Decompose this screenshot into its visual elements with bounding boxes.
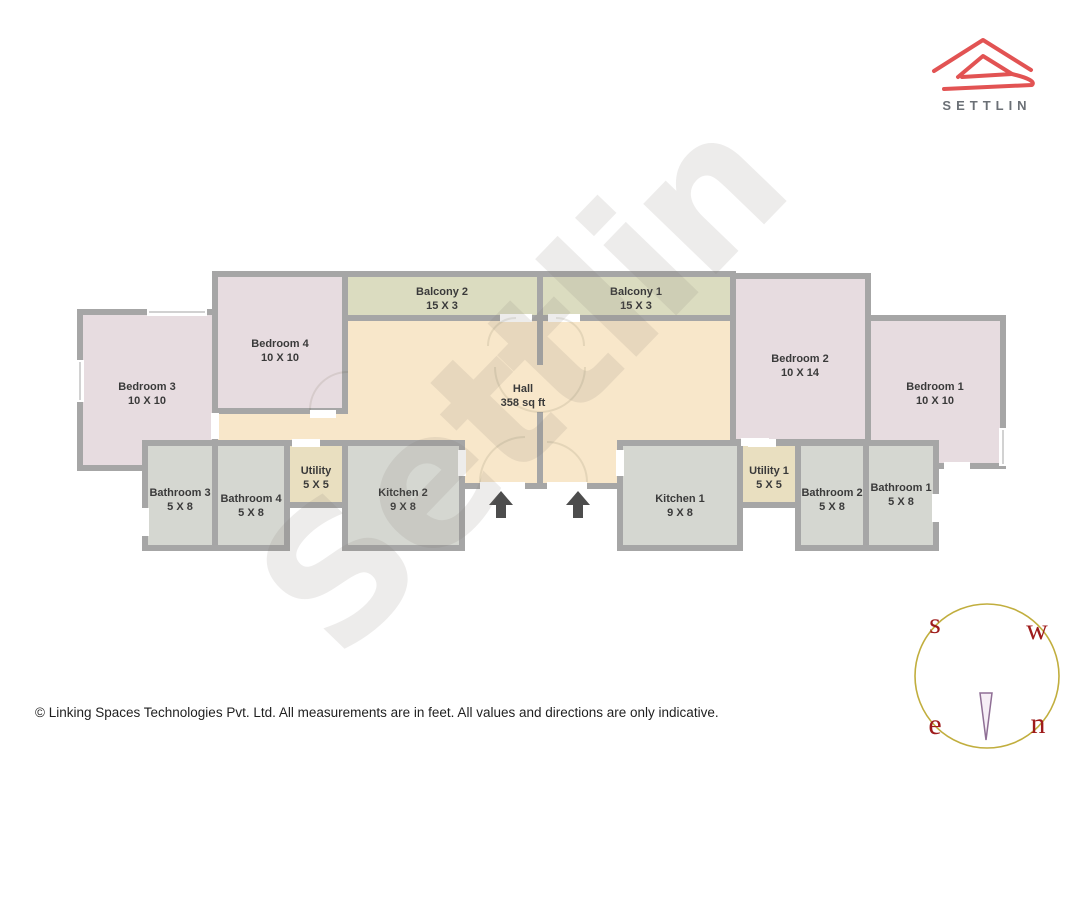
room-dims-bathroom-4: 5 X 8 (238, 507, 264, 519)
room-label-hall: Hall (513, 383, 533, 395)
entrance-arrow-icon-right (566, 491, 590, 518)
room-dims-bathroom-3: 5 X 8 (167, 501, 193, 513)
room-dims-kitchen-2: 9 X 8 (390, 501, 416, 513)
room-label-bathroom-4: Bathroom 4 (220, 493, 282, 505)
compass-needle-icon (980, 693, 992, 740)
room-dims-hall: 358 sq ft (501, 397, 546, 409)
room-dims-balcony-2: 15 X 3 (426, 300, 458, 312)
room-dims-bedroom-2: 10 X 14 (781, 367, 820, 379)
compass-letter-n: n (1031, 707, 1046, 740)
room-label-utility-1: Utility 1 (749, 465, 789, 477)
room-label-bedroom-1: Bedroom 1 (906, 381, 963, 393)
brand-name: SETTLIN (912, 98, 1062, 113)
room-dims-utility-2: 5 X 5 (303, 479, 329, 491)
room-dims-bedroom-3: 10 X 10 (128, 395, 166, 407)
room-dims-bathroom-2: 5 X 8 (819, 501, 845, 513)
room-label-bathroom-2: Bathroom 2 (801, 487, 862, 499)
room-label-bedroom-4: Bedroom 4 (251, 338, 309, 350)
compass-letter-e: e (928, 708, 941, 741)
room-dims-bathroom-1: 5 X 8 (888, 496, 914, 508)
room-label-bedroom-3: Bedroom 3 (118, 381, 175, 393)
room-label-utility-2: Utility (301, 465, 332, 477)
room-label-kitchen-1: Kitchen 1 (655, 493, 705, 505)
entrance-arrow-icon-left (489, 491, 513, 518)
room-dims-bedroom-1: 10 X 10 (916, 395, 954, 407)
room-dims-kitchen-1: 9 X 8 (667, 507, 693, 519)
settlin-logo-icon (920, 28, 1070, 98)
room-label-balcony-1: Balcony 1 (610, 286, 662, 298)
room-dims-balcony-1: 15 X 3 (620, 300, 652, 312)
room-label-bedroom-2: Bedroom 2 (771, 353, 828, 365)
room-dims-bedroom-4: 10 X 10 (261, 352, 299, 364)
room-label-bathroom-3: Bathroom 3 (149, 487, 210, 499)
compass: s w e n (905, 592, 1075, 762)
copyright-footer: © Linking Spaces Technologies Pvt. Ltd. … (35, 705, 719, 720)
compass-letter-w: w (1026, 613, 1048, 646)
room-dims-utility-1: 5 X 5 (756, 479, 782, 491)
room-label-balcony-2: Balcony 2 (416, 286, 468, 298)
room-label-bathroom-1: Bathroom 1 (870, 482, 931, 494)
compass-letter-s: s (929, 607, 941, 640)
room-label-kitchen-2: Kitchen 2 (378, 487, 428, 499)
